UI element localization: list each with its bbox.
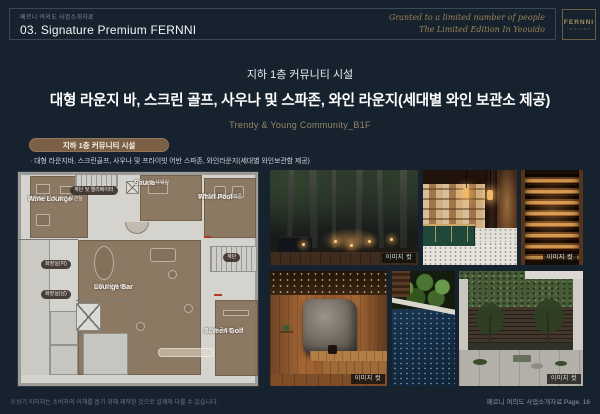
- furniture-table: [136, 322, 145, 331]
- image-caption: 이미지 컷: [351, 374, 385, 384]
- plan-service-room: [50, 345, 78, 375]
- image-caption: 이미지 컷: [543, 253, 577, 263]
- hero-tagline: Trendy & Young Community_B1F: [0, 120, 600, 130]
- hero-block: 지하 1층 커뮤니티 시설 대형 라운지 바, 스크린 골프, 사우나 및 스파…: [0, 66, 600, 130]
- lantern: [390, 238, 393, 241]
- plan-service-room: [50, 311, 78, 345]
- plan-pill-stair: 계단: [223, 253, 240, 262]
- logo-subtext: YEOUIDO: [567, 27, 591, 31]
- room-label-ko: 스크린 골프장: [204, 328, 233, 334]
- furniture-sofa: [36, 214, 50, 226]
- photo-sauna: 이미지 컷: [270, 271, 387, 386]
- logo-text: FERNNI: [564, 19, 594, 26]
- plan-pill-wc-men: 화장실(남): [41, 290, 71, 299]
- lamp-cord: [466, 170, 467, 188]
- garden-rock: [531, 363, 543, 369]
- room-label-ko: 대형 라운지 바: [94, 284, 124, 290]
- wood-slats: [392, 271, 410, 297]
- plan-wall-line: [18, 239, 78, 240]
- floor-plan: 계단 및 엘리베이터 화장실(여) 화장실(남) 계단 Wine Lounge …: [18, 172, 258, 386]
- furniture-table: [168, 270, 177, 279]
- header-tagline: Granted to a limited number of people Th…: [389, 12, 545, 35]
- lantern: [350, 244, 353, 247]
- photo-wine-storage: 이미지 컷: [521, 170, 583, 265]
- room-label-ko: 프라이빗 어반 스파존: [198, 194, 242, 200]
- brand-logo: FERNNI YEOUIDO: [562, 9, 596, 40]
- header-eyebrow: 페르니 여의도 사업소개자료: [20, 12, 196, 21]
- brass-trim: [435, 226, 436, 242]
- furniture-table: [94, 246, 114, 280]
- hero-headline: 대형 라운지 바, 스크린 골프, 사우나 및 스파존, 와인 라운지(세대별 …: [0, 89, 600, 110]
- plan-stage-arc: [125, 222, 149, 234]
- furniture-sofa: [150, 248, 176, 262]
- shrub: [473, 359, 487, 365]
- hero-eyebrow: 지하 1층 커뮤니티 시설: [0, 66, 600, 82]
- tree-trunk: [400, 170, 407, 248]
- sauna-bucket: [328, 345, 337, 354]
- plan-marker: [214, 294, 222, 296]
- section-bullet: · 대형 라운지바, 스크린골프, 사우나 및 프라이빗 어반 스파존, 와인라…: [30, 156, 310, 166]
- pendant-lamp: [487, 190, 493, 200]
- footer-page-info: 페르니 여의도 사업소개자료 Page. 16: [487, 396, 590, 406]
- plant: [282, 325, 290, 331]
- tagline-line-2: The Limited Edition In Yeouido: [389, 24, 545, 36]
- star-ceiling: [270, 271, 387, 295]
- room-whirl-pool: [204, 178, 256, 238]
- sauna-bench: [322, 361, 387, 374]
- photo-lounge-bar: [423, 170, 517, 265]
- lounge-sofa: [278, 236, 312, 252]
- header-title-block: 페르니 여의도 사업소개자료 03. Signature Premium FER…: [20, 12, 196, 37]
- room-label-ko: 사우나 및 샤워실: [134, 180, 169, 186]
- furniture-bar-counter: [158, 348, 214, 357]
- ceiling-edge: [525, 271, 583, 279]
- tagline-line-1: Granted to a limited number of people: [389, 12, 545, 24]
- plan-wall-line: [76, 300, 128, 301]
- image-caption: 이미지 컷: [547, 374, 581, 384]
- plan-pill-wc-women: 화장실(여): [41, 260, 71, 269]
- header-bar: 페르니 여의도 사업소개자료 03. Signature Premium FER…: [9, 8, 556, 40]
- room-label-ko: 와인라운지 및 와인 보관실: [28, 196, 83, 202]
- furniture-table: [184, 304, 193, 313]
- brass-trim: [451, 226, 452, 242]
- slide: 페르니 여의도 사업소개자료 03. Signature Premium FER…: [0, 0, 600, 414]
- lantern-glow: [320, 228, 380, 252]
- plan-service-room: [83, 333, 128, 375]
- lantern: [334, 240, 337, 243]
- page-title: 03. Signature Premium FERNNI: [20, 23, 196, 37]
- plan-elevator-shaft: [76, 303, 101, 331]
- photo-plunge-pool: [392, 271, 455, 386]
- section-pill: 지하 1층 커뮤니티 시설: [29, 138, 169, 152]
- wall-shelf: [280, 331, 293, 333]
- lantern: [368, 240, 371, 243]
- furniture-sofa: [36, 184, 50, 194]
- shrub: [555, 361, 567, 366]
- sauna-bench: [310, 351, 387, 361]
- lamp-cord: [490, 170, 491, 190]
- image-caption: 이미지 컷: [382, 253, 416, 263]
- lantern: [302, 243, 305, 246]
- photo-courtyard: 이미지 컷: [459, 271, 583, 386]
- brass-trim: [467, 226, 468, 242]
- plan-pill-elevator: 계단 및 엘리베이터: [70, 186, 118, 195]
- furniture-golf-tee: [223, 310, 249, 316]
- footer-disclaimer: ※상기 이미지는 소비자의 이해를 돕기 위해 제작된 것으로 실제와 다를 수…: [10, 397, 218, 406]
- planting-strip: [468, 343, 573, 350]
- shelf-glow: [529, 180, 575, 250]
- garden-bench: [513, 355, 531, 362]
- plan-marker: [204, 236, 211, 238]
- plan-wall-line: [128, 300, 129, 375]
- photo-forest-lounge: 이미지 컷: [270, 170, 418, 265]
- pendant-lamp: [463, 188, 469, 198]
